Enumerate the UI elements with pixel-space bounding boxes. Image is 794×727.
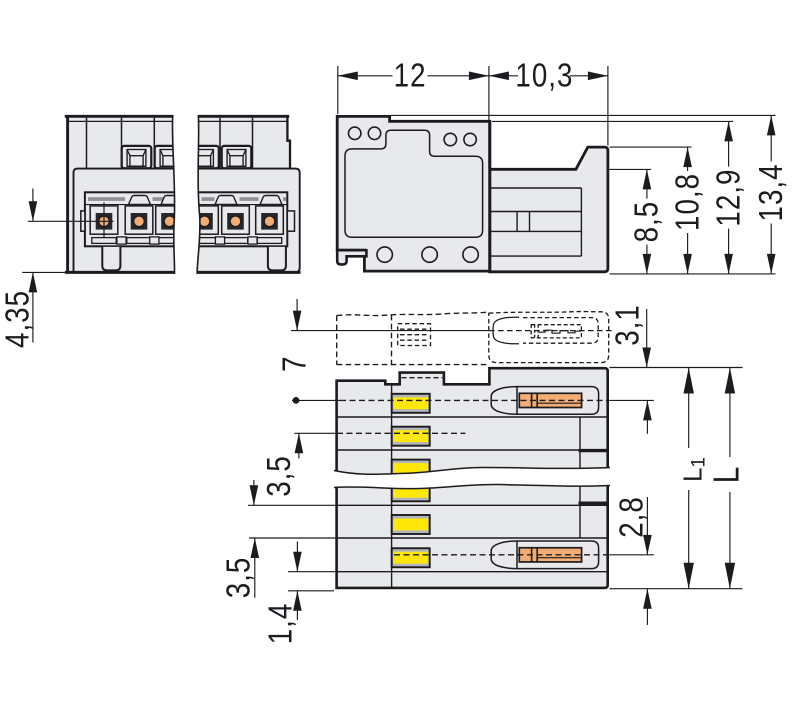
svg-text:12,9: 12,9 bbox=[710, 169, 747, 227]
svg-text:10,8: 10,8 bbox=[669, 173, 706, 231]
svg-text:3,1: 3,1 bbox=[609, 304, 646, 346]
svg-text:1,4: 1,4 bbox=[262, 603, 299, 645]
svg-text:3,5: 3,5 bbox=[220, 557, 257, 599]
svg-text:2,8: 2,8 bbox=[613, 496, 650, 538]
svg-text:13,4: 13,4 bbox=[753, 164, 790, 222]
svg-text:L: L bbox=[707, 466, 747, 484]
svg-text:10,3: 10,3 bbox=[515, 57, 573, 94]
svg-text:12: 12 bbox=[394, 57, 427, 94]
svg-text:8,5: 8,5 bbox=[628, 201, 665, 243]
svg-text:3,5: 3,5 bbox=[261, 455, 298, 497]
svg-text:7: 7 bbox=[276, 355, 313, 371]
svg-text:4,35: 4,35 bbox=[0, 290, 36, 348]
